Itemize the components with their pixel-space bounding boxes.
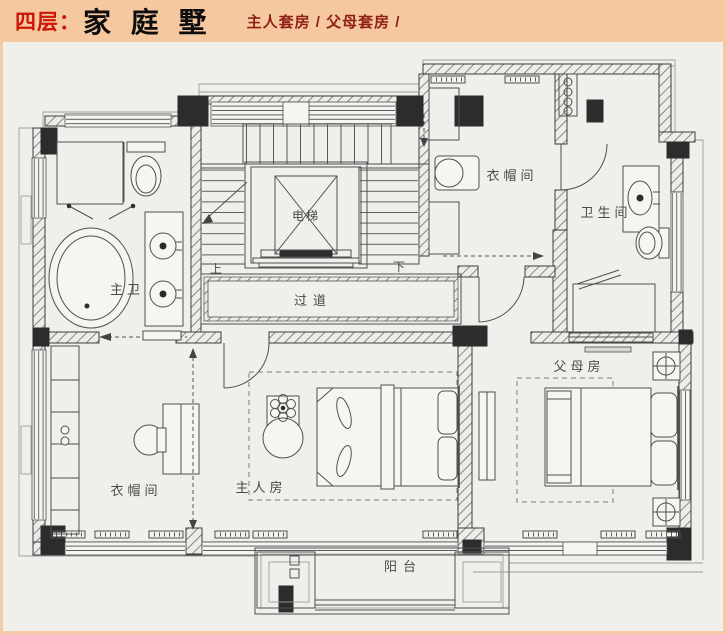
elevator-door-sill [280,251,332,256]
page-subtitle: 主人套房 / 父母套房 / [247,11,401,32]
master-bath-label: 主卫 [110,282,144,297]
floor-plan-canvas: 上 下 电梯 过道 [3,0,726,634]
sliding-door [443,252,544,260]
bathroom-label: 卫生间 [580,205,631,220]
dressing-table [163,404,199,474]
parents-room: 父母房 [479,277,680,526]
bed-runner [381,385,394,489]
shower [57,142,123,204]
cloakroom-lower: 衣帽间 [51,346,199,534]
wardrobe [429,202,459,254]
double-sink-vanity [145,212,183,326]
master-bathroom: 主卫 [49,142,187,341]
floor-label: 四层： [15,6,81,36]
corridor: 过道 [201,274,461,324]
nightstand [653,498,680,526]
door-arc [224,343,269,388]
radiator-icon [505,76,539,83]
door-arc [479,277,524,322]
pillow [438,437,457,480]
radiator-icon [149,531,183,538]
tv [585,347,631,352]
window [65,114,171,127]
page-title: 家 庭 墅 [83,1,213,41]
window [680,390,690,500]
bathtub [49,228,133,328]
window [65,542,186,555]
swing-doors [67,204,135,219]
pillow [651,393,677,437]
bed [545,386,678,490]
window [32,158,46,218]
sliding-door [99,331,187,341]
balcony-pillar [455,552,509,608]
door-arc [561,144,607,190]
radiator-icon [253,531,287,538]
bed [317,385,459,489]
elevator: 电梯 [245,162,367,268]
parents-room-label: 父母房 [553,359,604,374]
toilet [636,227,669,259]
window [32,350,46,520]
stairs-down-label: 下 [393,260,407,274]
cloakroom-upper-label: 衣帽间 [486,168,537,183]
corridor-label: 过道 [294,293,332,308]
radiator-icon [215,531,249,538]
toilet [127,142,165,196]
window [484,542,667,555]
nightstand [653,352,680,380]
radiator-icon [95,531,129,538]
pillow [651,441,677,485]
wardrobe [51,346,79,534]
chair [134,425,166,455]
pillow [438,391,457,434]
window [671,192,683,292]
radiator-icon [523,531,557,538]
title-bar: 四层： 家 庭 墅 主人套房 / 父母套房 / [3,0,723,42]
floor-plan-page: { "header": { "floor_label": "四层：", "tit… [0,0,726,634]
radiator-icon [431,76,465,83]
elevator-label: 电梯 [292,209,320,223]
shower [573,270,655,332]
master-bedroom-label: 主人房 [235,480,286,495]
radiator-icon [601,531,635,538]
window [211,102,396,126]
cloakroom-lower-label: 衣帽间 [110,483,161,498]
ottoman [435,156,479,190]
radiator-icon [423,531,457,538]
balcony-label: 阳台 [384,559,422,574]
master-bedroom: 主人房 [224,343,459,500]
bathroom: 卫生间 [561,144,669,332]
bench [547,391,571,483]
